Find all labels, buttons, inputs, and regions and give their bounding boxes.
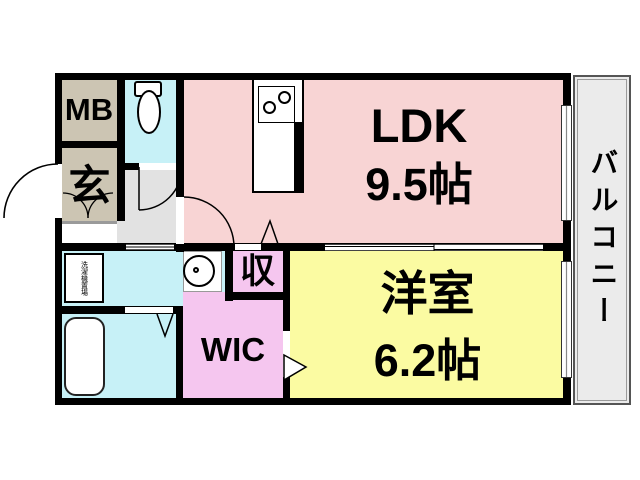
wic-door-opening bbox=[283, 331, 290, 377]
genkan-step bbox=[62, 221, 117, 243]
wall-mb-genkan bbox=[62, 141, 125, 148]
western-window bbox=[561, 261, 572, 378]
wall-bath-wic bbox=[176, 306, 183, 398]
wall-top bbox=[55, 73, 571, 80]
wall-toilet-bottom bbox=[125, 163, 139, 170]
room-hall bbox=[117, 163, 176, 243]
stove-burner-icon bbox=[263, 101, 276, 114]
hall-washroom-sliding-door bbox=[126, 244, 174, 250]
entrance-door-arc bbox=[4, 164, 58, 218]
ldk-label: LDK bbox=[290, 100, 548, 152]
bathtub-icon bbox=[64, 317, 105, 396]
floorplan: 洗濯機置場 バルコニー MB 玄 LDK 9.5帖 洋室 6.2帖 収 WIC bbox=[0, 0, 640, 480]
balcony-label: バルコニー bbox=[575, 77, 629, 403]
western-size-label: 6.2帖 bbox=[300, 336, 555, 386]
washing-machine-label: 洗濯機置場 bbox=[81, 261, 88, 296]
storage-label: 収 bbox=[225, 253, 290, 292]
ldk-size-label: 9.5帖 bbox=[290, 160, 548, 210]
wall-genkan-hall bbox=[117, 80, 125, 221]
western-label: 洋室 bbox=[300, 268, 555, 320]
genkan-label: 玄 bbox=[62, 163, 117, 209]
ldk-window bbox=[561, 105, 572, 221]
hall-ldk-opening bbox=[176, 197, 184, 244]
storage-door-opening bbox=[235, 244, 261, 250]
entrance-opening bbox=[55, 164, 62, 218]
sink-drain-icon bbox=[193, 267, 199, 273]
washing-machine-icon: 洗濯機置場 bbox=[64, 253, 104, 303]
wall-bottom bbox=[55, 398, 571, 405]
wic-label: WIC bbox=[183, 332, 283, 368]
toilet-bowl-icon bbox=[137, 90, 161, 134]
toilet-door-opening bbox=[139, 163, 176, 170]
sink-icon bbox=[183, 255, 215, 287]
bath-door-opening bbox=[125, 307, 173, 313]
ldk-western-sliding-door bbox=[325, 244, 543, 251]
mb-label: MB bbox=[60, 93, 118, 127]
balcony: バルコニー bbox=[573, 75, 631, 405]
wall-storage-bottom bbox=[225, 292, 290, 300]
